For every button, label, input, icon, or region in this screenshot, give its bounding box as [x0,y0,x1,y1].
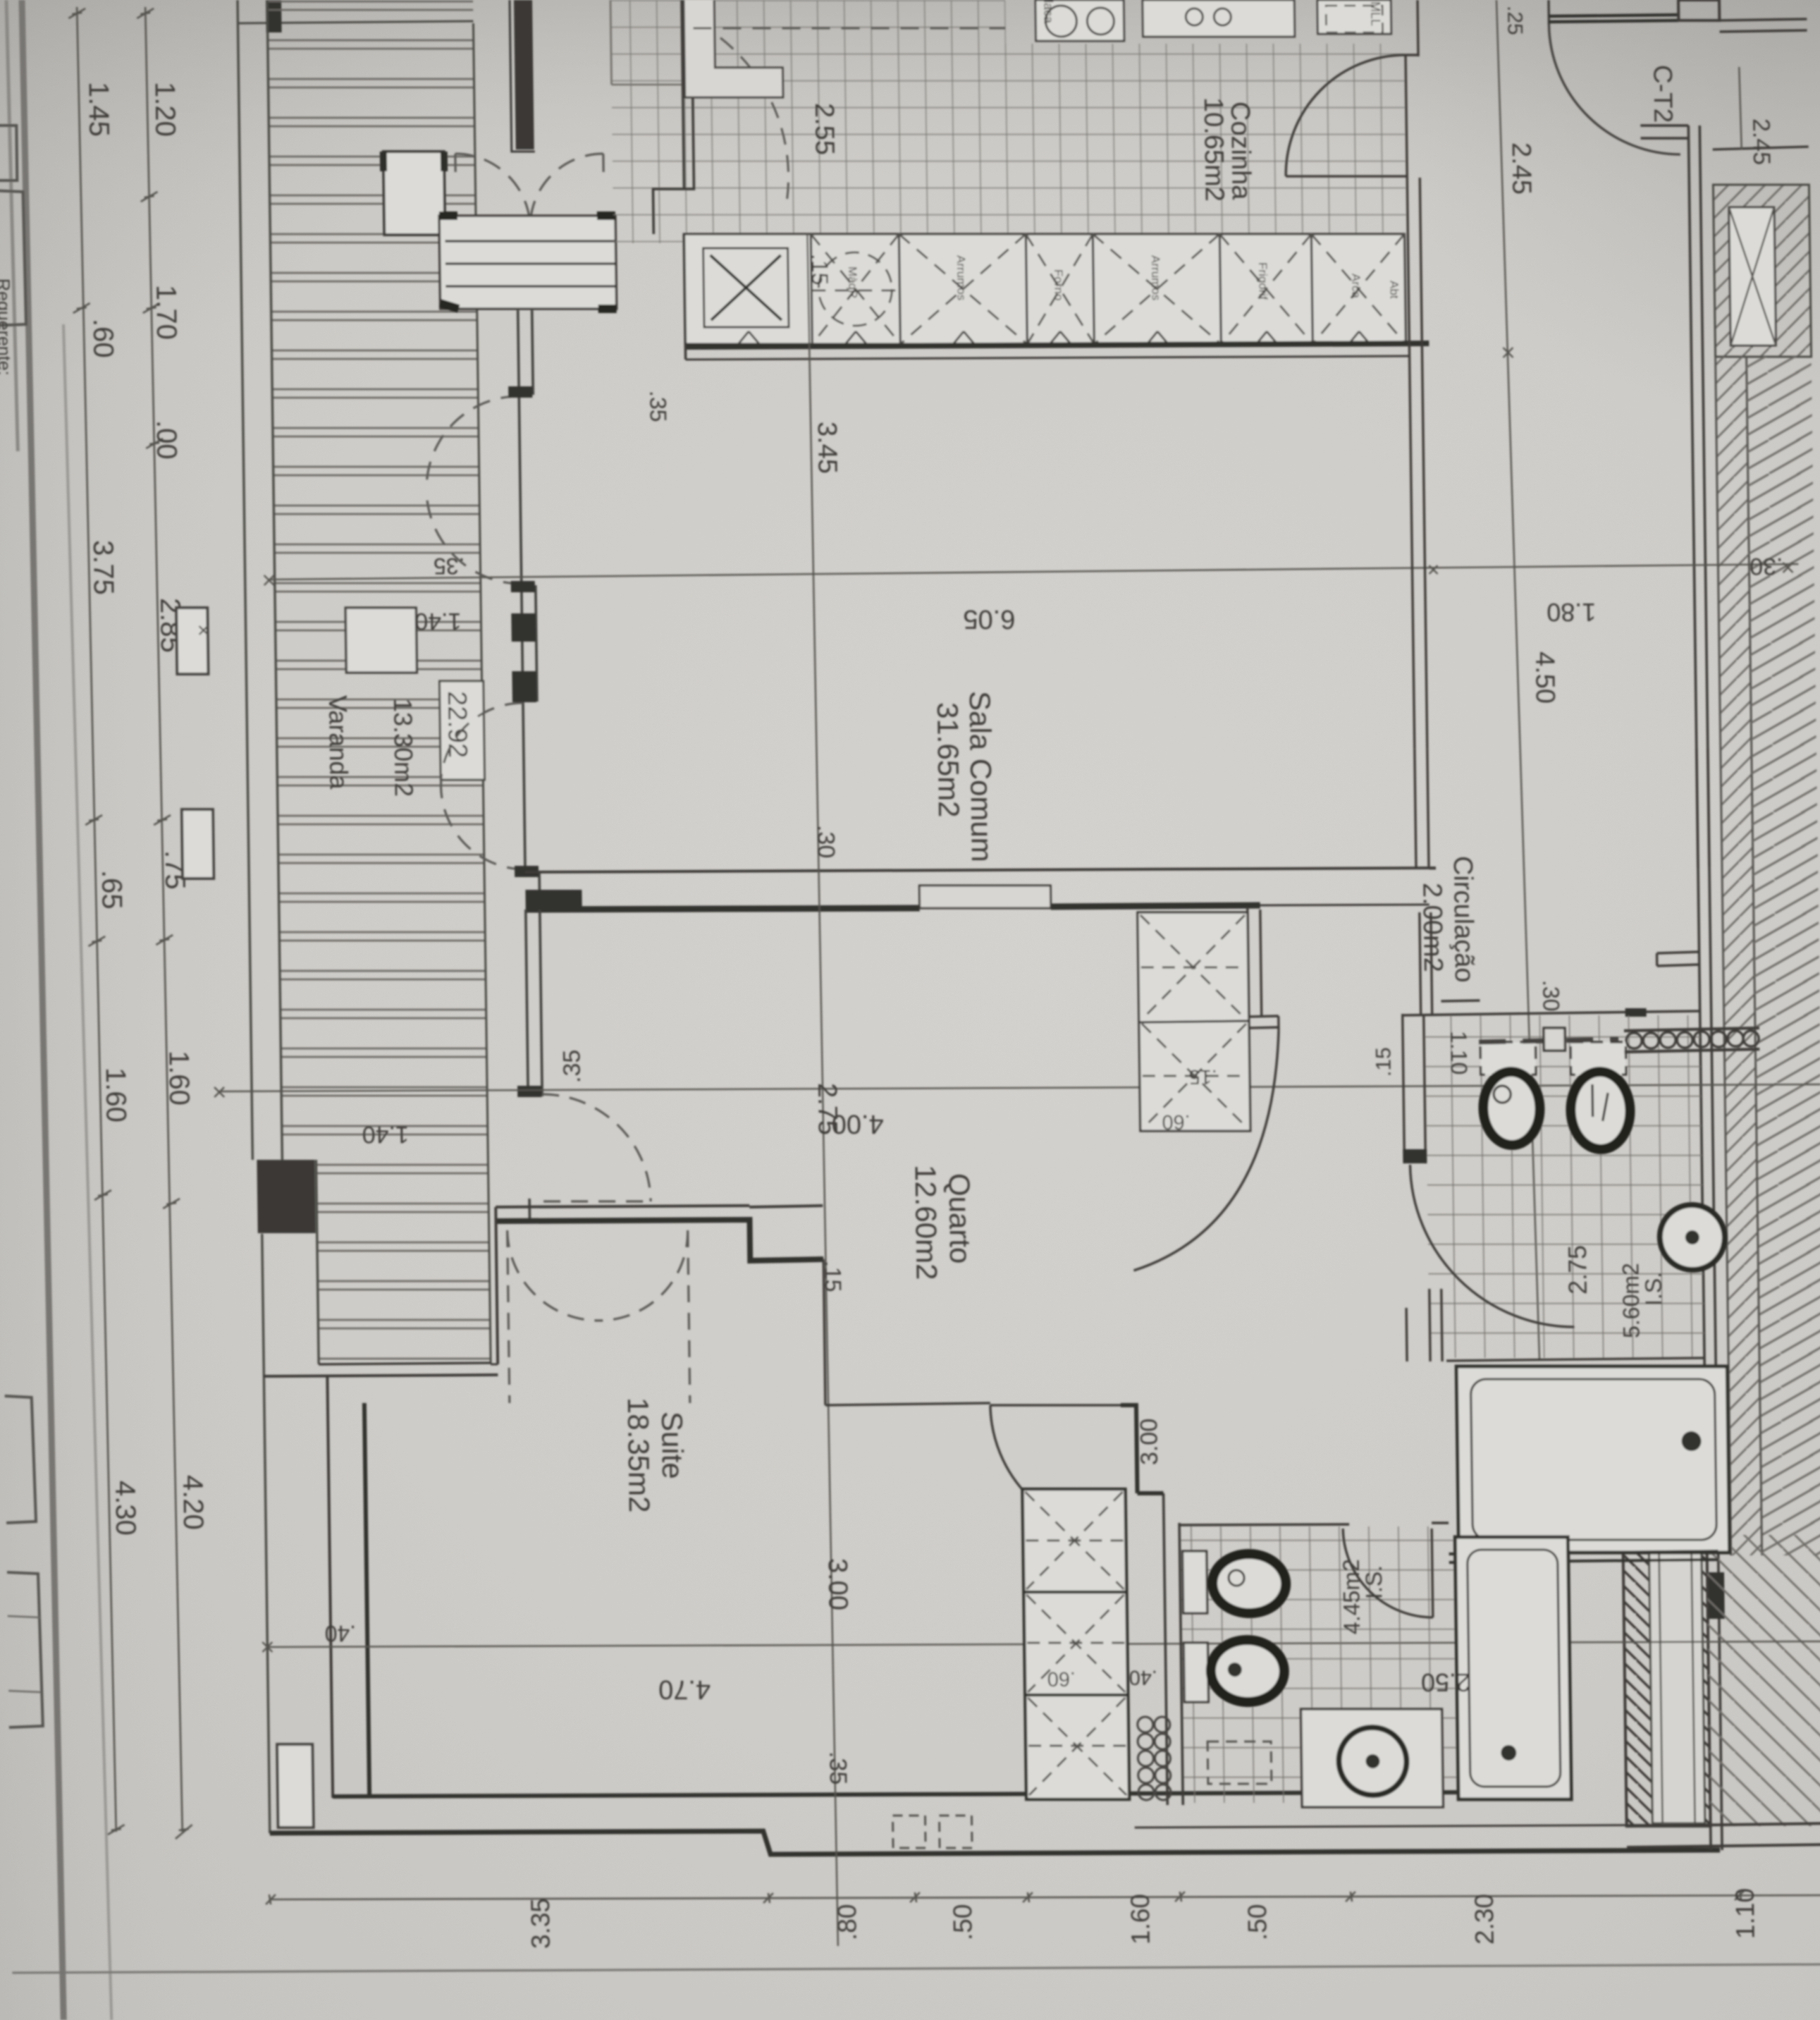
svg-text:6.05: 6.05 [963,604,1016,634]
svg-text:.15: .15 [1372,1047,1396,1077]
svg-text:Cozinha: Cozinha [1225,102,1256,200]
svg-text:C-T2: C-T2 [1648,65,1678,123]
svg-text:2.50: 2.50 [1421,1668,1471,1697]
svg-text:1.60: 1.60 [163,1051,195,1106]
svg-text:.25: .25 [1503,6,1527,35]
svg-text:Placa: Placa [1041,0,1056,24]
svg-text:1.80: 1.80 [1547,598,1597,627]
svg-text:3.75: 3.75 [87,540,119,595]
svg-text:MàqR: MàqR [846,267,860,298]
svg-text:2.55: 2.55 [809,103,840,155]
svg-text:13.30m2: 13.30m2 [388,698,419,797]
svg-text:MLL: MLL [1368,1,1382,26]
svg-text:Frigorif: Frigorif [1256,262,1270,300]
svg-text:.30: .30 [1538,980,1564,1011]
svg-text:4.00: 4.00 [831,1109,884,1139]
svg-text:Arrumos: Arrumos [954,255,969,300]
svg-text:31.65m2: 31.65m2 [931,702,966,817]
svg-text:3.45: 3.45 [812,422,842,474]
svg-text:.35: .35 [645,391,671,422]
svg-text:1.20: 1.20 [149,82,181,137]
svg-text:4.20: 4.20 [177,1475,209,1530]
svg-text:2.45: 2.45 [1747,118,1775,165]
svg-text:3.00: 3.00 [823,1558,853,1610]
svg-text:.35: .35 [824,1751,851,1785]
svg-text:1.40: 1.40 [414,608,462,635]
svg-text:1.10: 1.10 [1446,1031,1472,1075]
svg-text:1.70: 1.70 [150,285,182,340]
svg-text:.50: .50 [948,1904,978,1940]
svg-text:1.10: 1.10 [1730,1888,1760,1939]
svg-text:.40: .40 [1129,1666,1157,1689]
svg-text:I.S.: I.S. [1361,1565,1387,1599]
svg-text:Abt: Abt [1387,281,1401,299]
svg-text:.65: .65 [96,870,128,910]
svg-text:4.30: 4.30 [109,1481,141,1536]
svg-text:Sala Comum: Sala Comum [964,691,999,862]
svg-text:1.60: 1.60 [100,1067,132,1122]
svg-text:Forno: Forno [1052,269,1066,300]
svg-text:Circulação: Circulação [1448,856,1479,983]
svg-text:.15: .15 [1188,1065,1217,1088]
svg-text:.35: .35 [434,553,465,579]
svg-text:1.60: 1.60 [1126,1894,1155,1945]
svg-text:2.00m2: 2.00m2 [1417,883,1448,972]
svg-text:1.40: 1.40 [362,1121,409,1148]
svg-text:Quarto: Quarto [943,1173,978,1263]
svg-text:12.60m2: 12.60m2 [909,1165,943,1280]
svg-text:2.75: 2.75 [1563,1245,1592,1294]
svg-text:.15: .15 [820,1261,846,1292]
svg-text:.30: .30 [1750,553,1783,580]
svg-text:I.S.: I.S. [1640,1272,1666,1306]
svg-text:4.50: 4.50 [1530,651,1560,704]
svg-text:3.35: 3.35 [526,1898,555,1949]
svg-text:Arrumos: Arrumos [1149,255,1163,300]
svg-text:4.45m2: 4.45m2 [1339,1559,1365,1634]
svg-text:.40: .40 [324,1621,356,1646]
svg-text:Arca: Arca [1349,274,1363,298]
svg-text:1.45: 1.45 [83,82,115,137]
svg-text:.15: .15 [807,254,833,285]
svg-text:18.35m2: 18.35m2 [622,1397,656,1512]
svg-text:Suite: Suite [656,1412,689,1479]
svg-text:.30: .30 [812,825,840,858]
svg-text:Varanda: Varanda [324,695,354,790]
svg-text:.60: .60 [87,319,119,358]
svg-text:.00: .00 [151,420,183,460]
svg-text:Requerente:: Requerente: [0,278,14,376]
svg-text:10.65m2: 10.65m2 [1198,97,1229,202]
svg-text:3.00: 3.00 [1136,1419,1163,1465]
svg-text:.60: .60 [1162,1110,1191,1133]
svg-text:.60: .60 [1047,1667,1076,1690]
svg-text:2.45: 2.45 [1506,142,1537,195]
svg-text:5.60m2: 5.60m2 [1618,1263,1644,1338]
svg-text:4.70: 4.70 [658,1675,711,1704]
svg-text:2.30: 2.30 [1470,1894,1499,1945]
svg-text:.35: .35 [558,1050,586,1083]
svg-text:.50: .50 [1243,1904,1272,1940]
